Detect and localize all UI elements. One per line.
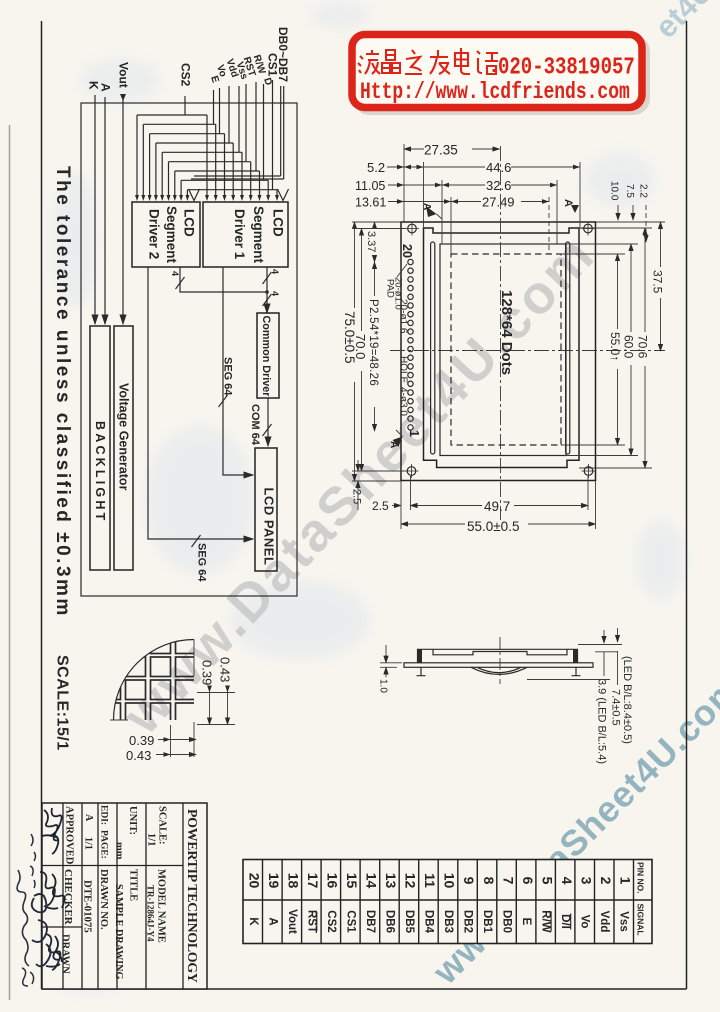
svg-text:1/1: 1/1 [83, 837, 94, 850]
svg-text:7.4±0.5: 7.4±0.5 [610, 689, 622, 726]
svg-text:17: 17 [305, 873, 321, 889]
svg-text:TR-12864J-Y4: TR-12864J-Y4 [146, 885, 156, 942]
svg-text:Http://www.lcdfriends.com: Http://www.lcdfriends.com [360, 80, 630, 106]
svg-text:SIGNAL: SIGNAL [636, 904, 646, 936]
svg-text:Segment: Segment [164, 206, 179, 264]
svg-text:4: 4 [559, 877, 575, 885]
svg-text:8: 8 [481, 877, 497, 885]
svg-text:Voltage Generator: Voltage Generator [117, 383, 131, 491]
svg-text:APPROVED: APPROVED [64, 806, 75, 865]
svg-text:HOLE: HOLE [398, 356, 409, 384]
svg-text:SEG 64: SEG 64 [196, 543, 208, 582]
svg-text:15: 15 [344, 873, 360, 889]
svg-text:3.9 (LED B/L:5.4): 3.9 (LED B/L:5.4) [596, 679, 608, 764]
svg-text:4: 4 [270, 291, 280, 296]
svg-text:70.0: 70.0 [353, 334, 368, 359]
svg-text:3: 3 [578, 877, 594, 885]
svg-text:020-33819057: 020-33819057 [498, 53, 635, 81]
svg-text:R/W: R/W [540, 910, 552, 933]
svg-text:2.2: 2.2 [638, 184, 649, 198]
svg-text:1: 1 [407, 430, 421, 437]
svg-text:6: 6 [520, 877, 536, 885]
svg-text:1.0: 1.0 [378, 679, 389, 693]
svg-text:PAGE:: PAGE: [99, 830, 109, 859]
svg-text:DTE-01075: DTE-01075 [82, 880, 94, 933]
svg-text:BACKLIGHT: BACKLIGHT [93, 421, 107, 523]
svg-text:49.7: 49.7 [484, 499, 510, 514]
svg-text:0.39: 0.39 [129, 733, 154, 748]
svg-text:DB0~DB7: DB0~DB7 [276, 27, 290, 82]
svg-text:60.0: 60.0 [622, 335, 636, 359]
svg-text:mm: mm [114, 842, 125, 860]
svg-text:DB4: DB4 [423, 910, 435, 934]
svg-text:3.37: 3.37 [365, 231, 377, 252]
svg-text:The tolerance unless classifie: The tolerance unless classified ±0.3mm [52, 166, 73, 618]
svg-text:DB0: DB0 [501, 910, 513, 933]
svg-text:5: 5 [539, 877, 555, 885]
svg-text:MODEL NAME: MODEL NAME [156, 869, 167, 943]
svg-text:7: 7 [500, 877, 516, 885]
svg-text:PIN NO.: PIN NO. [636, 862, 646, 894]
svg-text:(LED B/L:8.4±0.5): (LED B/L:8.4±0.5) [621, 656, 633, 744]
svg-text:11.05: 11.05 [355, 179, 385, 193]
svg-text:20: 20 [247, 873, 263, 889]
svg-text:RST: RST [305, 910, 317, 933]
svg-text:4: 4 [170, 271, 180, 276]
svg-text:TITLE: TITLE [128, 869, 139, 901]
svg-text:20: 20 [400, 244, 414, 258]
svg-text:7.5: 7.5 [624, 184, 635, 198]
svg-text:DB7: DB7 [364, 910, 376, 933]
svg-text:DB2: DB2 [462, 910, 474, 933]
svg-text:10: 10 [442, 873, 458, 889]
svg-text:20-ø1.6: 20-ø1.6 [398, 299, 409, 334]
svg-text:11: 11 [422, 873, 438, 888]
svg-text:0.43: 0.43 [218, 657, 233, 682]
svg-text:13.61: 13.61 [355, 196, 386, 210]
svg-text:SAMPLE DRAWING: SAMPLE DRAWING [113, 884, 124, 979]
svg-text:Vdd: Vdd [598, 911, 610, 933]
svg-text:Vss: Vss [618, 911, 630, 931]
svg-text:5.2: 5.2 [367, 160, 385, 175]
svg-text:55.0↑: 55.0↑ [608, 332, 622, 361]
svg-text:55.0±0.5: 55.0±0.5 [467, 519, 519, 534]
svg-text:13: 13 [383, 873, 399, 889]
svg-text:12: 12 [403, 873, 419, 889]
svg-text:14: 14 [364, 873, 380, 889]
svg-text:E: E [520, 918, 532, 926]
svg-text:70.6: 70.6 [636, 335, 650, 359]
svg-text:A: A [99, 83, 113, 92]
svg-text:UNIT:: UNIT: [127, 806, 138, 835]
svg-text:10.0: 10.0 [609, 181, 620, 201]
svg-text:DB1: DB1 [481, 910, 493, 934]
svg-text:Driver 1: Driver 1 [232, 209, 247, 260]
svg-text:1: 1 [617, 877, 633, 885]
svg-text:D/I: D/I [559, 914, 571, 929]
svg-text:Driver 2: Driver 2 [147, 209, 162, 259]
svg-text:SEG 64: SEG 64 [222, 357, 234, 396]
svg-text:SCALE:15/1: SCALE:15/1 [54, 655, 71, 751]
svg-text:DB5: DB5 [403, 910, 415, 934]
svg-text:2: 2 [598, 877, 614, 885]
svg-text:A: A [83, 814, 94, 822]
svg-text:CS1: CS1 [344, 910, 356, 933]
svg-text:2.5: 2.5 [351, 489, 363, 504]
svg-text:EDI:: EDI: [99, 805, 109, 825]
svg-text:4-ø3.0: 4-ø3.0 [398, 387, 409, 416]
svg-text:Vout: Vout [117, 62, 131, 88]
svg-text:P2.54*19=48.26: P2.54*19=48.26 [367, 299, 379, 386]
svg-text:2.5: 2.5 [372, 499, 389, 513]
svg-text:LCD: LCD [271, 209, 286, 237]
svg-text:CS2: CS2 [179, 63, 193, 87]
svg-text:POWERTIP TECHNOLOGY: POWERTIP TECHNOLOGY [185, 809, 200, 983]
svg-text:18: 18 [286, 873, 302, 889]
svg-text:9: 9 [461, 877, 477, 885]
svg-text:1/1: 1/1 [146, 833, 157, 846]
svg-text:DRAWN NO.: DRAWN NO. [98, 869, 109, 930]
svg-text:Common Driver: Common Driver [260, 316, 272, 398]
svg-text:DB6: DB6 [383, 910, 395, 933]
svg-text:4: 4 [270, 269, 280, 274]
svg-text:A: A [266, 917, 278, 925]
svg-text:K: K [87, 81, 101, 90]
svg-text:Segment: Segment [251, 206, 266, 264]
svg-text:LCD PANEL: LCD PANEL [262, 488, 277, 566]
svg-text:COM 64: COM 64 [249, 404, 261, 446]
svg-text:DB3: DB3 [442, 910, 454, 933]
svg-text:32.6: 32.6 [486, 178, 511, 193]
svg-text:0.43: 0.43 [126, 748, 151, 763]
svg-text:37.5: 37.5 [651, 270, 665, 294]
svg-text:44.6: 44.6 [486, 160, 511, 175]
svg-text:19: 19 [266, 873, 282, 889]
svg-text:27.49: 27.49 [482, 195, 515, 210]
svg-text:0.39: 0.39 [200, 660, 215, 685]
svg-text:SCALE:: SCALE: [157, 806, 168, 845]
svg-text:CS2: CS2 [325, 910, 337, 932]
svg-text:27.35: 27.35 [424, 143, 458, 158]
svg-text:16: 16 [325, 873, 341, 889]
svg-text:LCD: LCD [182, 209, 197, 237]
svg-text:Vo: Vo [579, 915, 591, 929]
svg-text:Vout: Vout [286, 909, 298, 934]
svg-text:K: K [247, 917, 259, 926]
svg-text:A: A [388, 441, 399, 448]
